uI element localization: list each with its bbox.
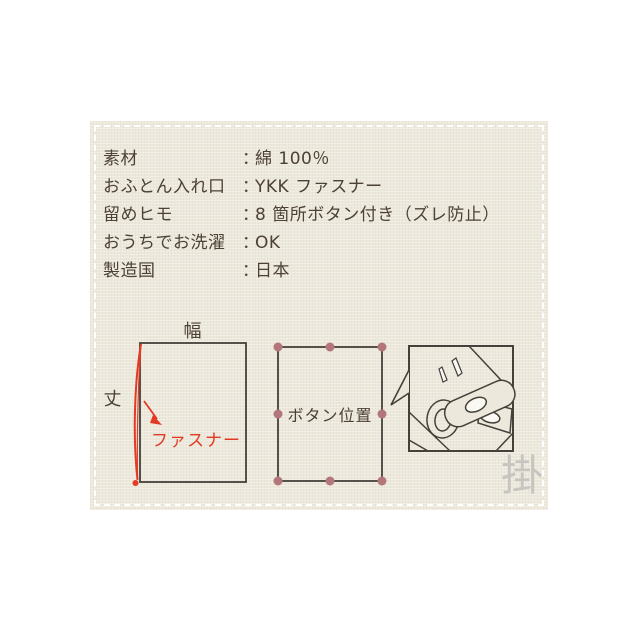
zipper-end-dot bbox=[133, 480, 139, 486]
button-dot bbox=[378, 477, 387, 486]
button-loop-illustration bbox=[409, 346, 519, 451]
width-label: 幅 bbox=[178, 317, 208, 343]
diagrams-canvas bbox=[90, 121, 548, 510]
futon-outline bbox=[140, 343, 246, 482]
button-dot bbox=[326, 343, 335, 352]
button-position-label: ボタン位置 bbox=[278, 402, 382, 426]
page: 素材 ： 綿 100％ おふとん入れ口 ： YKK ファスナー 留めヒモ ： 8… bbox=[0, 0, 640, 640]
height-label: 丈 bbox=[98, 385, 128, 411]
kake-watermark: 掛 bbox=[501, 455, 543, 497]
button-dot bbox=[274, 477, 283, 486]
button-dot bbox=[378, 343, 387, 352]
fabric-corner-line bbox=[496, 433, 513, 451]
emphasis-mark bbox=[452, 358, 462, 376]
emphasis-mark bbox=[439, 367, 447, 382]
button-dot bbox=[326, 477, 335, 486]
spec-card: 素材 ： 綿 100％ おふとん入れ口 ： YKK ファスナー 留めヒモ ： 8… bbox=[90, 121, 548, 510]
zipper-label: ファスナー bbox=[151, 426, 241, 451]
fabric-corner-line bbox=[409, 440, 428, 451]
button-dot bbox=[274, 343, 283, 352]
zipper-arrow-shaft bbox=[144, 401, 157, 419]
